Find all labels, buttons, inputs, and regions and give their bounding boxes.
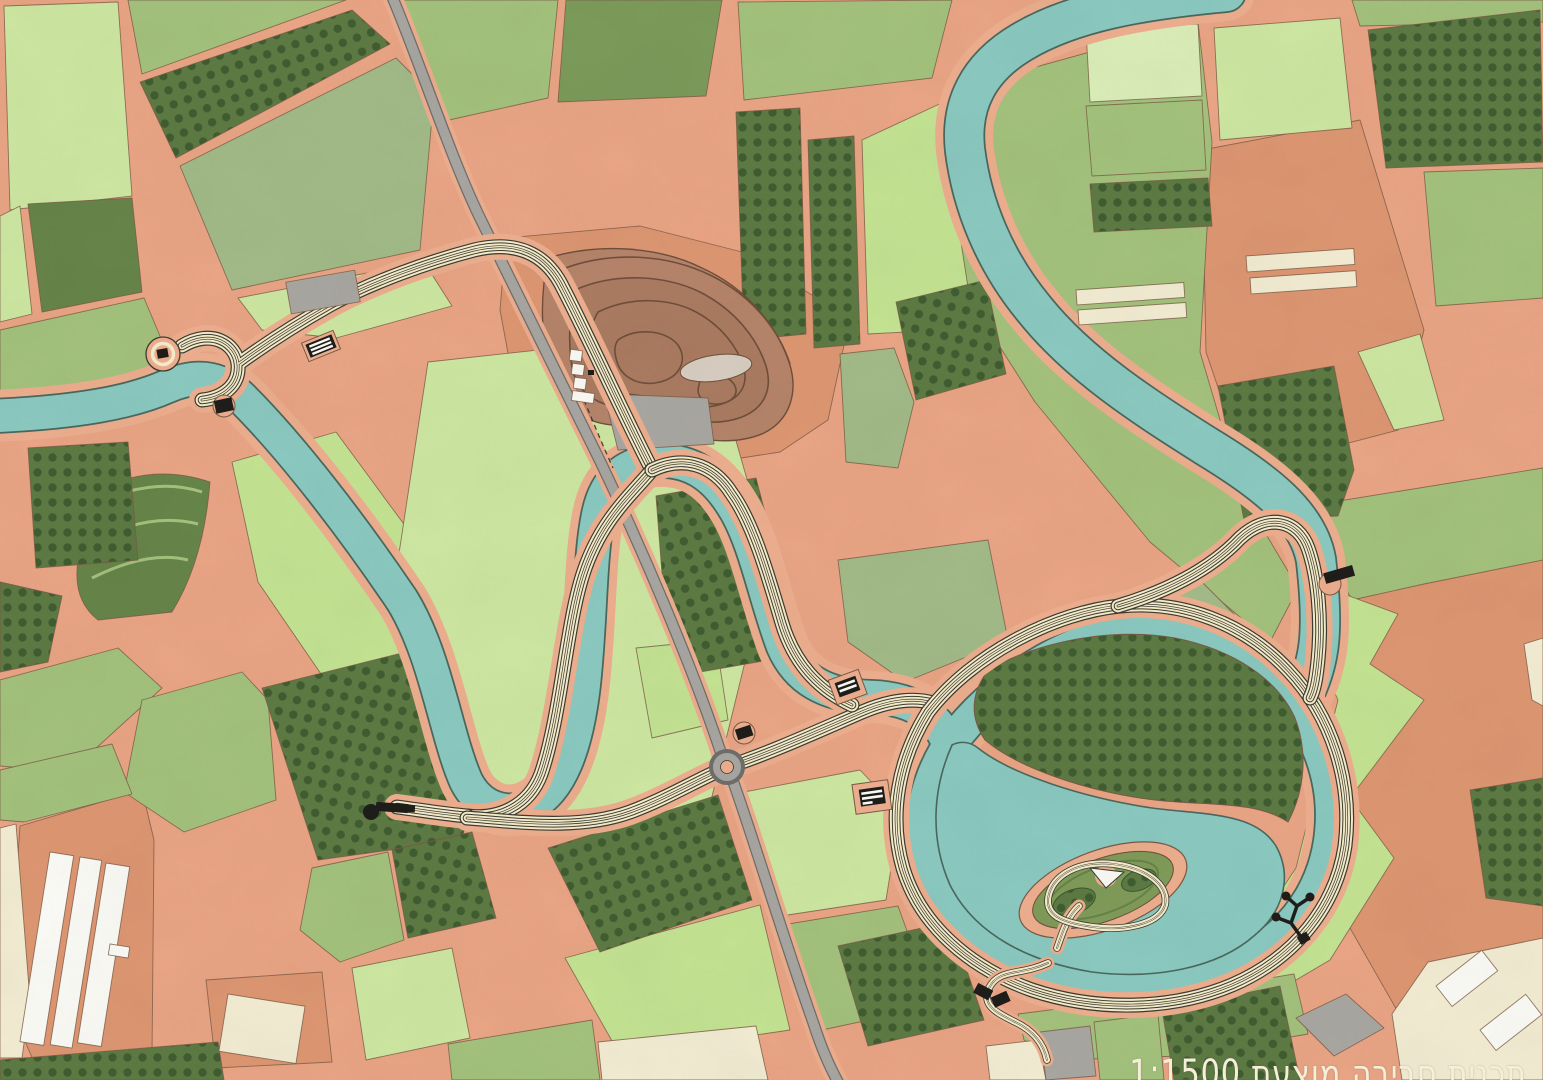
site-plan-map: תכנית סביבה מוצעת 1:1500 bbox=[0, 0, 1543, 1080]
map-drawing bbox=[0, 0, 1543, 1080]
plan-caption: תכנית סביבה מוצעת 1:1500 bbox=[1130, 1052, 1527, 1080]
watercolor-texture bbox=[0, 0, 1543, 1080]
